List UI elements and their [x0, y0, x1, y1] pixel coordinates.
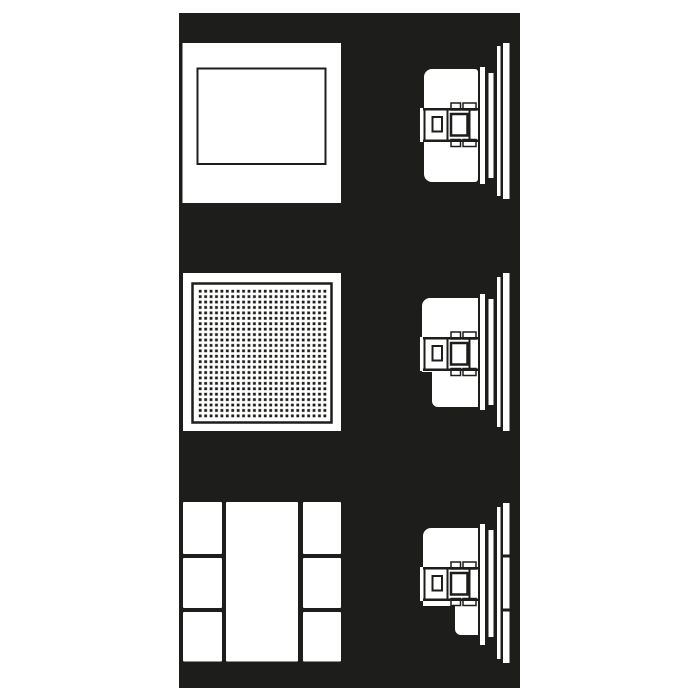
cover-plate-front-view — [183, 43, 342, 203]
spacer-ring-profile — [489, 73, 494, 178]
grille-perforation-field — [198, 289, 328, 419]
cover-trim-profile — [503, 273, 510, 431]
product-technical-drawing — [0, 0, 700, 700]
module-cell — [303, 612, 341, 662]
spacer-ring-profile — [489, 299, 494, 405]
module-cell — [303, 558, 341, 608]
grille-front-view — [183, 273, 341, 431]
figure-canvas — [0, 0, 700, 700]
module-cell — [183, 502, 222, 554]
module-cell — [183, 558, 222, 608]
module-frame-front-view — [183, 502, 341, 662]
mounting-ring-flange-profile — [480, 294, 485, 410]
cover-trim-profile — [503, 43, 510, 199]
trim-segment-divider — [503, 609, 510, 612]
module-cell — [183, 612, 222, 662]
module-center-panel — [226, 502, 298, 662]
cover-trim-profile — [503, 503, 510, 663]
cover-plate-recess-outline — [198, 69, 326, 165]
wall-surface-line — [497, 46, 501, 196]
spacer-ring-profile — [489, 530, 494, 637]
mounting-ring-flange-profile — [480, 67, 485, 184]
module-cell — [303, 502, 341, 554]
trim-segment-divider — [503, 555, 510, 558]
wall-surface-line — [497, 507, 501, 659]
mounting-ring-flange-profile — [480, 524, 485, 645]
wall-surface-line — [497, 277, 501, 427]
